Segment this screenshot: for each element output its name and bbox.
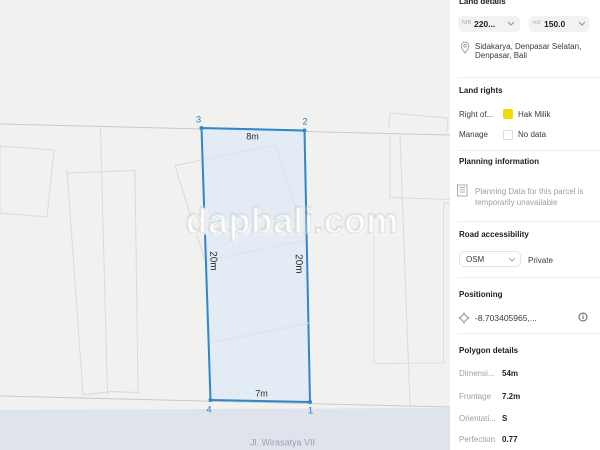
svg-text:7m: 7m [255, 389, 268, 399]
svg-text:4: 4 [206, 405, 211, 416]
svg-text:8m: 8m [246, 132, 259, 142]
svg-text:1: 1 [308, 406, 313, 417]
svg-text:20m: 20m [293, 254, 305, 274]
svg-text:20m: 20m [207, 251, 219, 271]
svg-text:3: 3 [196, 115, 201, 126]
svg-text:2: 2 [302, 117, 307, 128]
svg-text:dapbali.com: dapbali.com [186, 200, 399, 241]
svg-text:Jl. Wirasatya VII: Jl. Wirasatya VII [250, 438, 315, 448]
